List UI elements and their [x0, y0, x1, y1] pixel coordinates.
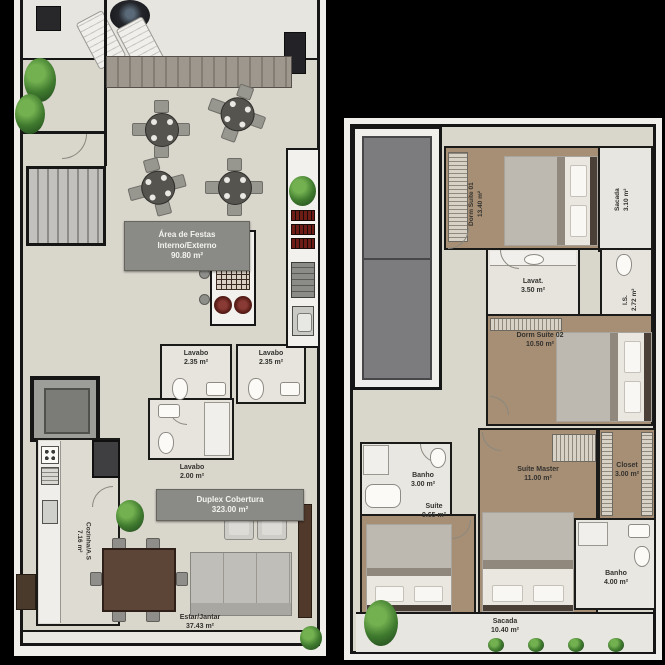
- round-table-set: [205, 158, 263, 216]
- toilet: [430, 448, 446, 468]
- bed: [366, 524, 452, 612]
- sink: [158, 404, 180, 418]
- room-area: 4.00 m²: [586, 579, 646, 588]
- room-area: 7.16 m²: [74, 486, 83, 596]
- terrace-top-area: [23, 0, 317, 60]
- area-festas-label: Área de Festas Interno/Externo 90.80 m²: [124, 221, 250, 271]
- room-name: Banho: [398, 472, 448, 481]
- room-label-dorm-suite-02: Dorm Suíte 02 10.50 m²: [490, 332, 590, 350]
- dining-chair: [90, 572, 102, 586]
- room-name: Lavabo: [164, 350, 228, 359]
- staircase: [26, 166, 106, 246]
- area-festas-line2: Interno/Externo: [125, 241, 249, 251]
- bathtub: [365, 484, 401, 508]
- toilet: [634, 546, 650, 567]
- bar-stool: [199, 294, 210, 305]
- room-name: Cozinha/A.S: [83, 486, 92, 596]
- room-label-dorm-suite-01: Dorm Suíte 01 13.40 m²: [468, 168, 486, 240]
- dining-chair: [176, 572, 188, 586]
- room-name: Estar/Jantar: [150, 614, 250, 623]
- plant: [289, 176, 316, 206]
- cooktop: [41, 446, 59, 464]
- kitchen-sink: [42, 500, 58, 524]
- grill-rack: [291, 238, 315, 249]
- wardrobe: [552, 434, 596, 462]
- grill-rack: [291, 210, 315, 221]
- room-label-suite: Suíte 9.65 m²: [402, 503, 466, 521]
- sink: [292, 306, 314, 336]
- dining-table: [102, 548, 176, 612]
- round-table-set: [132, 100, 190, 158]
- decor-rosette: [234, 296, 252, 314]
- sink: [206, 382, 226, 396]
- room-area: 11.00 m²: [496, 475, 580, 484]
- room-area: 10.40 m²: [455, 627, 555, 636]
- decor-rosette: [214, 296, 232, 314]
- room-label-estar-jantar: Estar/Jantar 37.43 m²: [150, 614, 250, 632]
- room-label-closet: Closet 3.00 m²: [604, 462, 650, 480]
- tv-panel: [298, 504, 312, 618]
- room-label-sacada-superior: Sacada 3.10 m²: [614, 164, 632, 236]
- room-name: Lavabo: [156, 464, 228, 473]
- balcony-strip: [23, 630, 317, 643]
- room-label-is: I.S. 2.72 m²: [622, 280, 640, 320]
- room-area: 37.43 m²: [150, 623, 250, 632]
- duplex-area: 323.00 m²: [157, 505, 303, 515]
- floorplan-canvas: Área de Festas Interno/Externo 90.80 m² …: [0, 0, 665, 665]
- bush: [528, 638, 544, 652]
- toilet: [158, 432, 174, 454]
- toilet: [248, 378, 264, 400]
- room-label-cozinha: Cozinha/A.S 7.16 m²: [74, 486, 92, 596]
- room-label-lavabo-a: Lavabo 2.35 m²: [164, 350, 228, 368]
- bed: [504, 156, 598, 246]
- room-label-banho-2: Banho 4.00 m²: [586, 570, 646, 588]
- room-name: Suíte: [402, 503, 466, 512]
- area-festas-area: 90.80 m²: [125, 251, 249, 261]
- room-area: 9.65 m²: [402, 512, 466, 521]
- toilet: [616, 254, 632, 276]
- room-name: Closet: [604, 462, 650, 471]
- room-name: Lavabo: [240, 350, 302, 359]
- room-label-lavat: Lavat. 3.50 m²: [494, 278, 572, 296]
- shaft-void: [362, 136, 432, 380]
- room-area: 3.50 m²: [494, 287, 572, 296]
- room-area: 13.40 m²: [477, 168, 486, 240]
- room-label-suite-master: Suíte Master 11.00 m²: [496, 466, 580, 484]
- planter-box: [16, 574, 36, 610]
- room-label-banho-1: Banho 3.00 m²: [398, 472, 448, 490]
- sofa: [190, 552, 292, 616]
- plant: [364, 600, 398, 646]
- room-name: Sacada: [614, 164, 623, 236]
- duplex-cobertura-label: Duplex Cobertura 323.00 m²: [156, 489, 304, 521]
- appliance-block: [291, 262, 315, 298]
- wardrobe: [490, 318, 562, 331]
- bush: [568, 638, 584, 652]
- bush: [488, 638, 504, 652]
- sink: [628, 524, 650, 538]
- room-label-lavabo-c: Lavabo 2.00 m²: [156, 464, 228, 482]
- room-area: 3.00 m²: [604, 471, 650, 480]
- shower-stall: [578, 522, 608, 546]
- grill-rack: [291, 224, 315, 235]
- room-name: I.S.: [622, 280, 631, 320]
- shower-stall: [204, 402, 230, 456]
- bed: [482, 512, 574, 612]
- plant: [300, 626, 322, 650]
- room-area: 3.00 m²: [398, 481, 448, 490]
- room-area: 2.35 m²: [164, 359, 228, 368]
- room-area: 2.00 m²: [156, 473, 228, 482]
- elevator: [30, 376, 100, 442]
- room-name: Banho: [586, 570, 646, 579]
- room-area: 2.35 m²: [240, 359, 302, 368]
- room-name: Lavat.: [494, 278, 572, 287]
- deck-strip: [106, 56, 292, 88]
- duplex-line1: Duplex Cobertura: [157, 495, 303, 505]
- area-festas-line1: Área de Festas: [125, 230, 249, 240]
- room-name: Dorm Suíte 01: [468, 168, 477, 240]
- oven: [41, 467, 59, 485]
- shower-stall: [363, 445, 389, 475]
- sink: [280, 382, 300, 396]
- room-label-lavabo-b: Lavabo 2.35 m²: [240, 350, 302, 368]
- room-area: 2.72 m²: [631, 280, 640, 320]
- room-area: 3.10 m²: [623, 164, 632, 236]
- room-area: 10.50 m²: [490, 341, 590, 350]
- room-name: Suíte Master: [496, 466, 580, 475]
- refrigerator: [92, 440, 120, 478]
- equipment-box: [36, 6, 61, 31]
- room-name: Sacada: [455, 618, 555, 627]
- toilet: [172, 378, 188, 400]
- room-label-sacada-inferior: Sacada 10.40 m²: [455, 618, 555, 636]
- room-name: Dorm Suíte 02: [490, 332, 590, 341]
- plant: [15, 94, 45, 134]
- plant: [116, 500, 144, 532]
- bush: [608, 638, 624, 652]
